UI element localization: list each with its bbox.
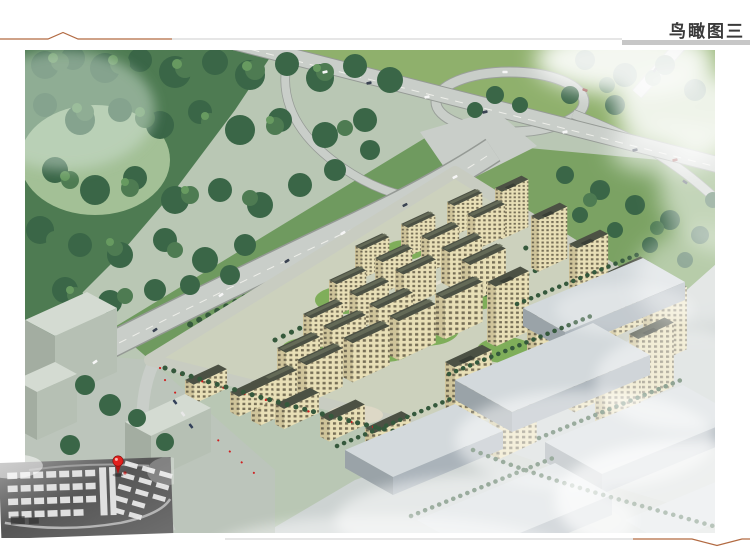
album-page: 鸟瞰图三 (0, 0, 750, 560)
header-rule (0, 30, 750, 48)
page-title: 鸟瞰图三 (669, 17, 745, 42)
site-plan-inset (0, 452, 174, 538)
footer-rule (0, 533, 750, 549)
site-plan-map (0, 452, 174, 538)
